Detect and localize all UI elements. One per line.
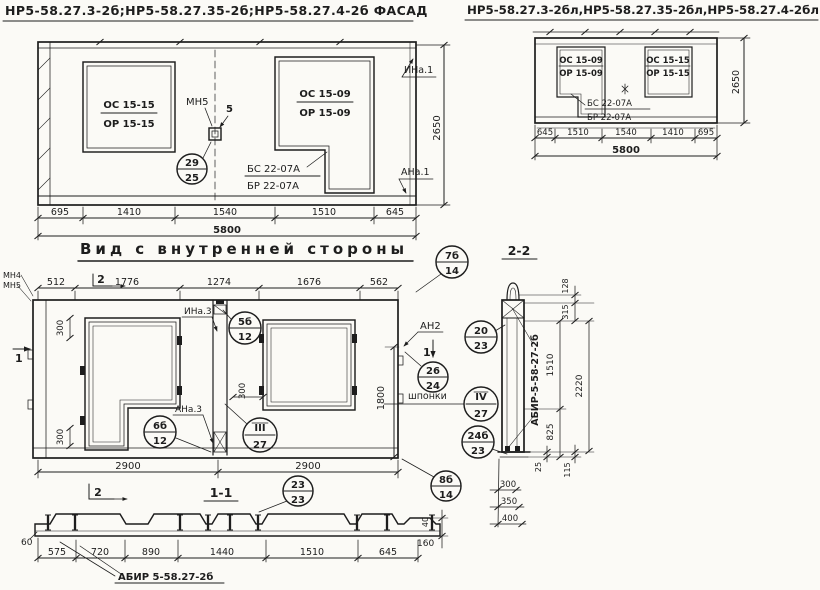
window-right bbox=[259, 320, 357, 410]
balloon-23-23: 23 23 bbox=[259, 476, 313, 512]
svg-text:1540: 1540 bbox=[213, 207, 237, 218]
panel-outline bbox=[38, 42, 416, 205]
anchor-bottom-label: АНа.1 bbox=[401, 167, 430, 178]
svg-text:1: 1 bbox=[15, 352, 23, 365]
svg-text:695: 695 bbox=[698, 128, 714, 138]
balloon-7b-14: 7б 14 bbox=[416, 246, 468, 292]
bottom-dims: 575 720 890 1440 1510 645 bbox=[35, 538, 422, 562]
svg-text:1410: 1410 bbox=[662, 128, 684, 138]
section-2-2-title: 2-2 bbox=[502, 243, 537, 259]
svg-text:АБИР-5-58-27-2б: АБИР-5-58-27-2б bbox=[530, 334, 541, 426]
balloon-iv-27: IV 27 bbox=[464, 387, 498, 421]
svg-text:2: 2 bbox=[94, 486, 102, 499]
svg-text:720: 720 bbox=[91, 547, 109, 558]
svg-text:АНа.3: АНа.3 bbox=[175, 405, 202, 415]
svg-text:562: 562 bbox=[370, 277, 388, 288]
svg-text:14: 14 bbox=[445, 266, 459, 277]
svg-text:МН5: МН5 bbox=[3, 281, 21, 290]
svg-text:2220: 2220 bbox=[575, 374, 585, 397]
svg-text:шпонки: шпонки bbox=[408, 391, 447, 402]
facade-left-title: НР5-58.27.3-2б;НР5-58.27.35-2б;НР5-58.27… bbox=[5, 3, 428, 18]
svg-text:27: 27 bbox=[474, 409, 488, 420]
beam-label-bottom: БР 22-07А bbox=[247, 181, 299, 192]
svg-text:27: 27 bbox=[253, 440, 267, 451]
svg-text:6б: 6б bbox=[153, 420, 167, 432]
svg-text:1510: 1510 bbox=[312, 207, 336, 218]
svg-text:1510: 1510 bbox=[546, 353, 556, 376]
balloon-29-25: 29 25 bbox=[177, 142, 211, 184]
balloon-24b-23: 24б 23 bbox=[462, 426, 507, 458]
svg-text:20: 20 bbox=[474, 326, 488, 337]
rib-marks bbox=[45, 515, 435, 530]
window-right-mark-bottom: ОР 15-09 bbox=[299, 108, 350, 119]
svg-text:1410: 1410 bbox=[117, 207, 141, 218]
inner-view-title: Вид с внутренней стороны bbox=[80, 240, 408, 258]
svg-text:695: 695 bbox=[51, 207, 69, 218]
svg-text:1440: 1440 bbox=[210, 547, 234, 558]
panel-section-body bbox=[498, 283, 530, 457]
window-left-mark-top: ОС 15-15 bbox=[103, 100, 154, 111]
balloon-20-23: 20 23 bbox=[465, 321, 505, 353]
facade-right-title: НР5-58.27.3-2бл,НР5-58.27.35-2бл,НР5-58.… bbox=[467, 3, 820, 17]
svg-text:400: 400 bbox=[502, 514, 518, 524]
mount-detail: МН5 5 bbox=[186, 97, 233, 140]
svg-text:1800: 1800 bbox=[376, 386, 387, 410]
svg-text:645: 645 bbox=[379, 547, 397, 558]
svg-text:29: 29 bbox=[185, 158, 199, 169]
section-1-1-drawing: 60 160 40 575 720 890 1440 1510 645 АБИР… bbox=[21, 510, 448, 583]
svg-text:315: 315 bbox=[561, 304, 570, 319]
balloon-6b-12: 6б 12 bbox=[144, 416, 211, 452]
drawing-canvas: НР5-58.27.3-2б;НР5-58.27.35-2б;НР5-58.27… bbox=[0, 0, 820, 590]
svg-text:300: 300 bbox=[238, 383, 248, 399]
beam-labels: БС 22-07А БР 22-07А bbox=[571, 94, 650, 123]
beam-labels: БС 22-07А БР 22-07А bbox=[245, 152, 327, 192]
svg-text:645: 645 bbox=[537, 128, 553, 138]
svg-text:115: 115 bbox=[563, 462, 572, 477]
svg-text:23: 23 bbox=[291, 480, 305, 491]
window-left: ОС 15-15 ОР 15-15 bbox=[83, 62, 175, 152]
svg-text:2: 2 bbox=[97, 273, 105, 286]
svg-text:25: 25 bbox=[534, 462, 543, 472]
svg-text:1676: 1676 bbox=[297, 277, 321, 288]
panel-edge-lines bbox=[38, 39, 416, 205]
svg-text:БР 22-07А: БР 22-07А bbox=[587, 113, 631, 123]
balloon-8b-14: 8б 14 bbox=[402, 459, 461, 501]
svg-text:25: 25 bbox=[185, 173, 199, 184]
section2-flag-bottom: 2 bbox=[89, 484, 127, 499]
svg-text:ОС 15-15: ОС 15-15 bbox=[646, 56, 690, 66]
svg-text:БС 22-07А: БС 22-07А bbox=[587, 99, 632, 109]
svg-text:7б: 7б bbox=[445, 250, 459, 262]
svg-text:645: 645 bbox=[386, 207, 404, 218]
mount-label: МН5 bbox=[186, 97, 209, 108]
window-right-mark-top: ОС 15-09 bbox=[299, 89, 350, 100]
balloon-iii-27: III 27 bbox=[225, 404, 277, 452]
svg-text:300: 300 bbox=[56, 320, 66, 336]
svg-text:1-1: 1-1 bbox=[210, 485, 233, 500]
svg-text:5б: 5б bbox=[238, 316, 252, 328]
mount-num: 5 bbox=[226, 104, 233, 115]
svg-text:8б: 8б bbox=[439, 474, 453, 486]
svg-text:1510: 1510 bbox=[300, 547, 324, 558]
svg-text:12: 12 bbox=[238, 332, 252, 343]
base-stacked-dims: 300 350 400 bbox=[490, 459, 526, 527]
bottom-dims: 2900 2900 bbox=[35, 460, 402, 478]
facade-left-drawing: НР5-58.27.3-2б;НР5-58.27.35-2б;НР5-58.27… bbox=[3, 3, 450, 240]
svg-text:825: 825 bbox=[546, 423, 556, 440]
anchor-labels: ИНа.1 АНа.1 bbox=[399, 59, 436, 193]
height-value: 2650 bbox=[432, 115, 443, 140]
total-width: 5800 bbox=[612, 145, 640, 156]
svg-text:IV: IV bbox=[475, 392, 487, 403]
svg-text:ОР 15-15: ОР 15-15 bbox=[646, 69, 690, 79]
anchor-mark-icon bbox=[622, 84, 628, 94]
window-right: ОС 15-15 ОР 15-15 bbox=[645, 47, 692, 97]
height-dim: 2650 bbox=[717, 35, 750, 126]
svg-text:575: 575 bbox=[48, 547, 66, 558]
svg-text:24б: 24б bbox=[468, 430, 489, 442]
svg-text:512: 512 bbox=[47, 277, 65, 288]
dim-60: 60 bbox=[21, 532, 37, 548]
inner-view-drawing: Вид с внутренней стороны 7б 14 512 1776 … bbox=[3, 240, 507, 512]
section1-flag-right: 1 bbox=[423, 340, 433, 359]
svg-text:1510: 1510 bbox=[567, 128, 589, 138]
svg-text:23: 23 bbox=[471, 446, 485, 457]
svg-text:ОР 15-09: ОР 15-09 bbox=[559, 69, 603, 79]
svg-text:350: 350 bbox=[501, 497, 517, 507]
slab-profile bbox=[35, 514, 440, 536]
svg-text:300: 300 bbox=[500, 480, 516, 490]
svg-text:III: III bbox=[254, 423, 265, 434]
svg-text:2-2: 2-2 bbox=[508, 243, 531, 258]
svg-text:300: 300 bbox=[56, 429, 66, 445]
top-dims: 512 1776 1274 1676 562 bbox=[35, 277, 402, 300]
center-column bbox=[213, 300, 227, 455]
svg-text:1274: 1274 bbox=[207, 277, 231, 288]
svg-text:160: 160 bbox=[417, 539, 434, 549]
corner-mount-labels: МН4 МН5 bbox=[3, 271, 33, 301]
section1-flag-left: 1 bbox=[13, 349, 30, 365]
svg-text:АН2: АН2 bbox=[420, 321, 441, 332]
section-2-2-drawing: 2-2 АБИР-5-58-27-2б 1510 825 128 315 bbox=[490, 243, 594, 527]
svg-text:23: 23 bbox=[291, 495, 305, 506]
svg-text:12: 12 bbox=[153, 436, 167, 447]
svg-text:ИНа.3: ИНа.3 bbox=[184, 307, 212, 317]
facade-right-drawing: НР5-58.27.3-2бл,НР5-58.27.35-2бл,НР5-58.… bbox=[465, 3, 820, 160]
svg-text:128: 128 bbox=[561, 278, 570, 293]
section-1-1-title: 1-1 bbox=[204, 485, 238, 501]
svg-text:40: 40 bbox=[421, 517, 430, 527]
svg-text:60: 60 bbox=[21, 538, 33, 548]
beam-label-top: БС 22-07А bbox=[247, 164, 300, 175]
svg-text:14: 14 bbox=[439, 490, 453, 501]
bottom-dims: 695 1410 1540 1510 645 5800 bbox=[35, 207, 420, 240]
svg-text:1540: 1540 bbox=[615, 128, 637, 138]
svg-text:2900: 2900 bbox=[115, 461, 140, 472]
svg-text:АБИР 5-58.27-2б: АБИР 5-58.27-2б bbox=[118, 571, 213, 583]
anchor-right-label: АН2 bbox=[404, 321, 443, 346]
svg-text:ОС 15-09: ОС 15-09 bbox=[559, 56, 603, 66]
svg-text:1: 1 bbox=[423, 346, 431, 359]
svg-text:МН4: МН4 bbox=[3, 271, 21, 280]
keys-label-group: шпонки bbox=[384, 391, 464, 404]
svg-text:2650: 2650 bbox=[731, 70, 742, 94]
svg-text:26: 26 bbox=[426, 366, 440, 377]
bottom-dims: 645 1510 1540 1410 695 5800 bbox=[532, 125, 721, 160]
balloon-5b-12: 5б 12 bbox=[223, 310, 261, 344]
blueprint-page: НР5-58.27.3-2б;НР5-58.27.35-2б;НР5-58.27… bbox=[0, 0, 820, 590]
svg-text:890: 890 bbox=[142, 547, 160, 558]
total-width: 5800 bbox=[213, 225, 241, 236]
svg-text:2900: 2900 bbox=[295, 461, 320, 472]
window-left-mark-bottom: ОР 15-15 bbox=[103, 119, 154, 130]
dim-1800: 1800 bbox=[376, 344, 399, 460]
svg-text:23: 23 bbox=[474, 341, 488, 352]
